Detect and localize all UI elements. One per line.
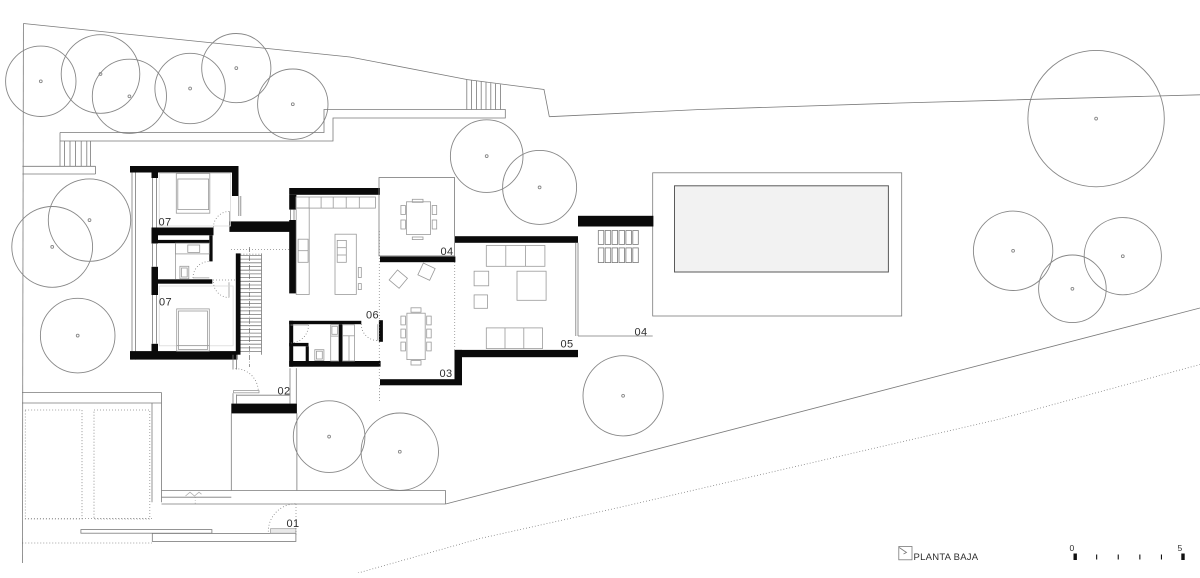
- svg-text:5: 5: [1178, 543, 1183, 553]
- svg-text:01: 01: [287, 518, 300, 530]
- svg-text:04: 04: [635, 327, 648, 339]
- svg-text:07: 07: [159, 216, 172, 228]
- svg-text:03: 03: [440, 368, 453, 380]
- svg-text:04: 04: [441, 246, 454, 258]
- svg-text:06: 06: [366, 309, 379, 321]
- svg-text:02: 02: [278, 386, 291, 398]
- svg-text:05: 05: [561, 339, 574, 351]
- svg-text:PLANTA BAJA: PLANTA BAJA: [914, 552, 979, 563]
- svg-text:0: 0: [1070, 543, 1075, 553]
- svg-text:07: 07: [159, 297, 172, 309]
